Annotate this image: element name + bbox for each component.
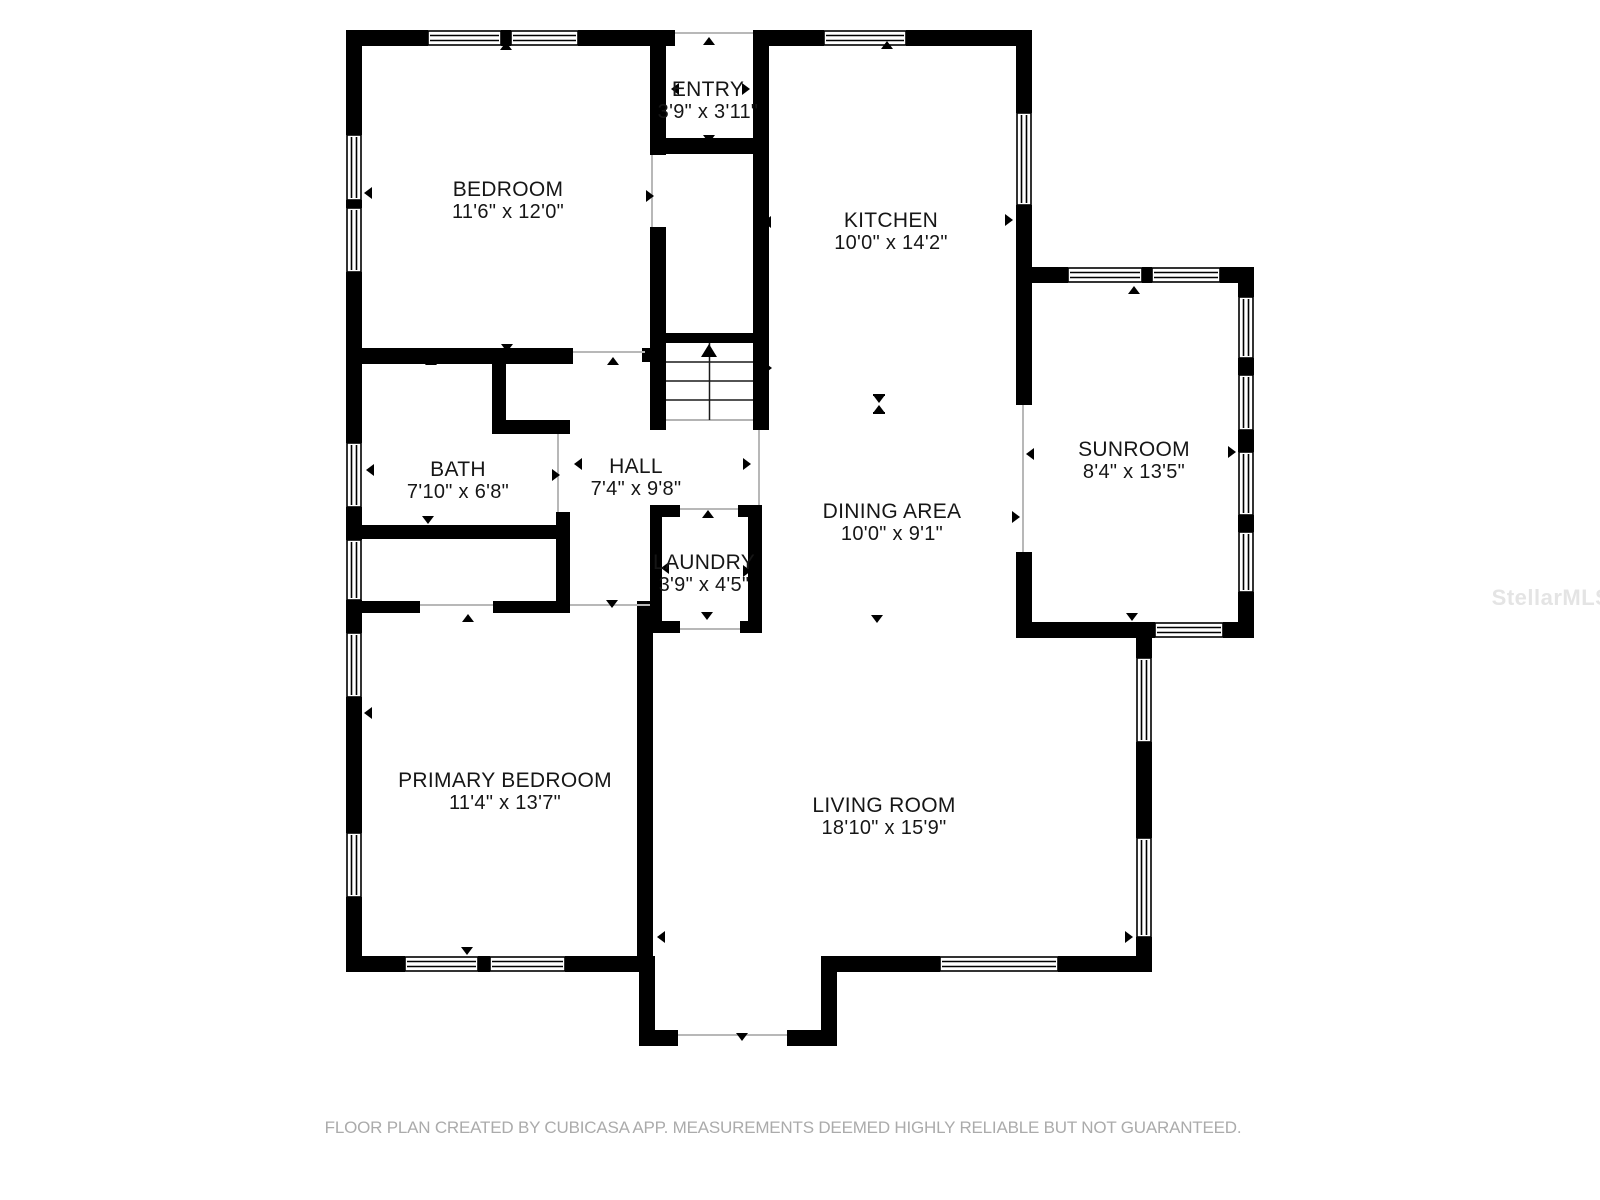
room-label-bedroom: BEDROOM 11'6" x 12'0": [452, 178, 564, 224]
open-boundary-marker: [873, 395, 885, 413]
window: [347, 208, 361, 272]
floor-plan-drawing: [0, 0, 1600, 1200]
room-label-bath: BATH 7'10" x 6'8": [407, 458, 509, 504]
window: [1068, 268, 1142, 282]
window: [1239, 297, 1253, 358]
room-name: LAUNDRY: [653, 551, 755, 574]
window: [1239, 452, 1253, 515]
room-name: LIVING ROOM: [812, 794, 955, 817]
room-name: ENTRY: [658, 78, 759, 101]
window: [428, 31, 501, 45]
window: [405, 957, 478, 971]
room-label-primary-bedroom: PRIMARY BEDROOM 11'4" x 13'7": [398, 769, 612, 815]
room-label-dining-area: DINING AREA 10'0" x 9'1": [823, 500, 962, 546]
room-label-laundry: LAUNDRY 3'9" x 4'5": [653, 551, 755, 597]
window: [1239, 532, 1253, 592]
window: [1137, 838, 1151, 937]
window: [1155, 623, 1223, 637]
room-dimensions: 7'10" x 6'8": [407, 481, 509, 504]
room-dimensions: 3'9" x 4'5": [653, 574, 755, 597]
room-name: PRIMARY BEDROOM: [398, 769, 612, 792]
room-dimensions: 18'10" x 15'9": [812, 817, 955, 840]
floor-plan-page: BEDROOM 11'6" x 12'0" ENTRY 3'9" x 3'11"…: [0, 0, 1600, 1200]
window: [347, 633, 361, 697]
stairs-up-arrow: [701, 344, 717, 357]
window: [347, 540, 361, 600]
window: [1239, 375, 1253, 430]
room-name: SUNROOM: [1078, 438, 1190, 461]
room-label-sunroom: SUNROOM 8'4" x 13'5": [1078, 438, 1190, 484]
room-dimensions: 10'0" x 9'1": [823, 523, 962, 546]
room-label-kitchen: KITCHEN 10'0" x 14'2": [834, 209, 948, 255]
room-name: DINING AREA: [823, 500, 962, 523]
window: [940, 957, 1058, 971]
room-name: BATH: [407, 458, 509, 481]
disclaimer-text: FLOOR PLAN CREATED BY CUBICASA APP. MEAS…: [325, 1118, 1242, 1138]
window: [511, 31, 578, 45]
room-dimensions: 3'9" x 3'11": [658, 101, 759, 124]
room-label-hall: HALL 7'4" x 9'8": [591, 455, 682, 501]
room-dimensions: 11'6" x 12'0": [452, 201, 564, 224]
window: [1152, 268, 1220, 282]
staircase: [666, 343, 753, 420]
watermark: StellarMLS: [1492, 585, 1600, 611]
room-name: BEDROOM: [452, 178, 564, 201]
window: [347, 135, 361, 200]
room-label-living-room: LIVING ROOM 18'10" x 15'9": [812, 794, 955, 840]
window: [1017, 113, 1031, 205]
room-label-entry: ENTRY 3'9" x 3'11": [658, 78, 759, 124]
room-dimensions: 8'4" x 13'5": [1078, 461, 1190, 484]
room-dimensions: 10'0" x 14'2": [834, 232, 948, 255]
window: [347, 443, 361, 507]
room-name: HALL: [591, 455, 682, 478]
room-dimensions: 11'4" x 13'7": [398, 792, 612, 815]
room-dimensions: 7'4" x 9'8": [591, 478, 682, 501]
room-name: KITCHEN: [834, 209, 948, 232]
window: [347, 833, 361, 897]
window: [1137, 658, 1151, 742]
window: [490, 957, 565, 971]
window: [824, 31, 906, 45]
